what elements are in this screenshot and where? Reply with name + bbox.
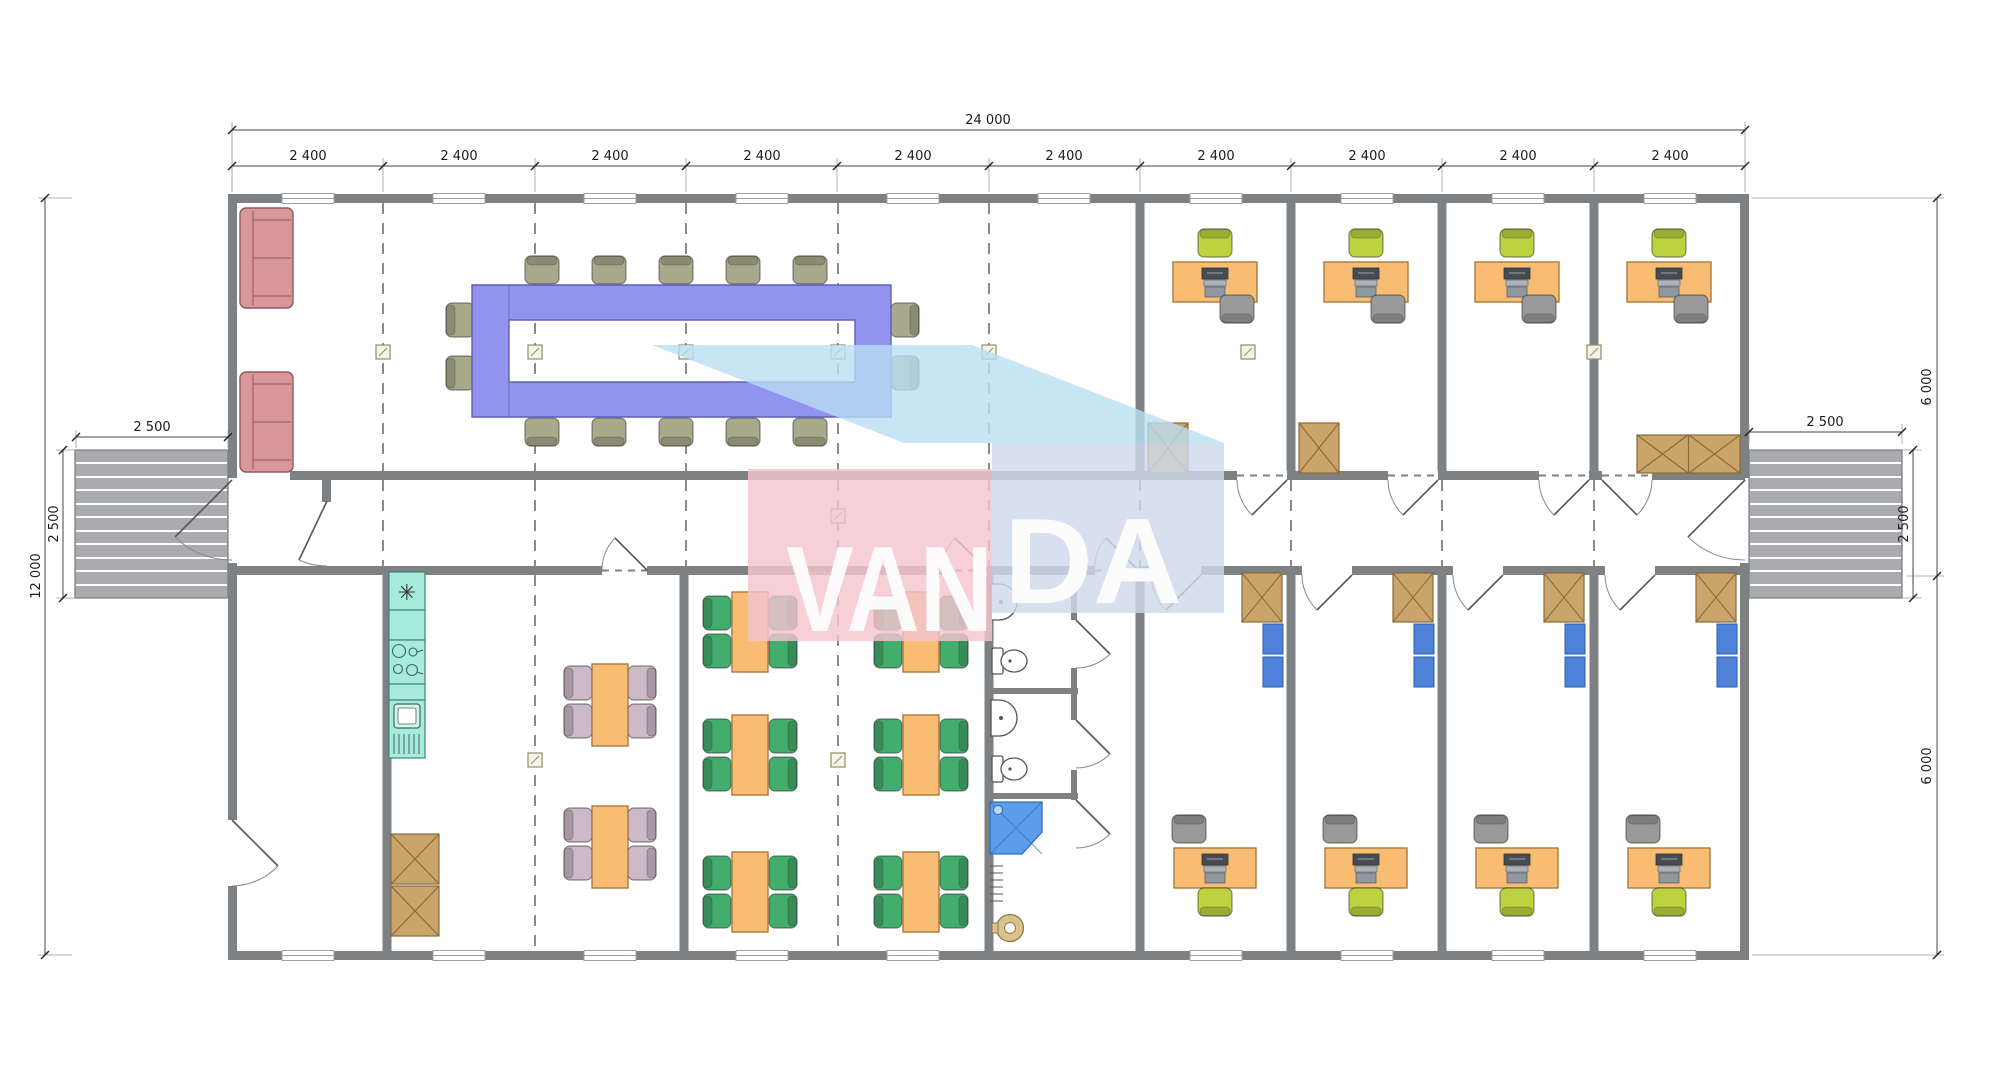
canteen-table xyxy=(703,715,797,795)
washbasin-icon xyxy=(991,700,1017,736)
entrance-ramp-right xyxy=(1749,450,1902,598)
sofa xyxy=(240,208,293,308)
dim-left-total: 12 000 xyxy=(29,553,44,599)
dim-segment: 2 400 xyxy=(1045,149,1082,164)
sofa xyxy=(240,372,293,472)
office-desk-set xyxy=(1626,573,1737,916)
dim-segment: 2 400 xyxy=(894,149,931,164)
dim-segment: 2 400 xyxy=(1499,149,1536,164)
office-desk-set xyxy=(1475,229,1559,323)
toilet-icon xyxy=(992,756,1027,782)
dim-right-ramp-depth: 2 500 xyxy=(1897,505,1912,542)
dim-right-bottom: 6 000 xyxy=(1920,747,1935,784)
dining-table xyxy=(564,664,656,746)
dim-segment: 2 400 xyxy=(743,149,780,164)
office-desk-set xyxy=(1323,573,1434,916)
dim-segment: 2 400 xyxy=(289,149,326,164)
watermark-text-da: DA xyxy=(1004,493,1182,629)
water-heater-icon xyxy=(992,915,1024,942)
dining-room xyxy=(391,664,656,936)
floor-plan: ✳ xyxy=(0,0,2000,1069)
bottom-offices xyxy=(1172,573,1737,916)
wc-block xyxy=(990,584,1042,942)
shower-icon xyxy=(990,802,1042,854)
canteen-table xyxy=(703,852,797,932)
dim-left-ramp-depth: 2 500 xyxy=(47,505,62,542)
canteen-table xyxy=(874,715,968,795)
toilet-icon xyxy=(992,648,1027,674)
office-desk-set xyxy=(1173,229,1257,323)
office-desk-set xyxy=(1474,573,1585,916)
dim-segment: 2 400 xyxy=(1348,149,1385,164)
dim-overall-width: 24 000 xyxy=(965,113,1011,128)
dimensions-top: 24 000 2 400 2 400 2 400 2 400 2 400 2 4… xyxy=(228,113,1749,192)
freezer-icon: ✳ xyxy=(398,581,416,606)
kitchen-unit: ✳ xyxy=(389,572,425,758)
dining-table xyxy=(564,806,656,888)
storage-boxes xyxy=(391,834,439,936)
dim-right-top: 6 000 xyxy=(1920,368,1935,405)
entrance-ramp-left xyxy=(75,450,228,598)
watermark-text-van: VAN xyxy=(786,521,993,657)
office-desk-set xyxy=(1324,229,1408,323)
office-desk-set xyxy=(1627,229,1711,323)
dim-segment: 2 400 xyxy=(1197,149,1234,164)
dim-right-ramp-width: 2 500 xyxy=(1806,415,1843,430)
dim-segment: 2 400 xyxy=(440,149,477,164)
dim-segment: 2 400 xyxy=(591,149,628,164)
meeting-room xyxy=(240,208,919,472)
dim-left-ramp-width: 2 500 xyxy=(133,420,170,435)
canteen-table xyxy=(874,852,968,932)
dim-segment: 2 400 xyxy=(1651,149,1688,164)
office-desk-set xyxy=(1172,573,1283,916)
